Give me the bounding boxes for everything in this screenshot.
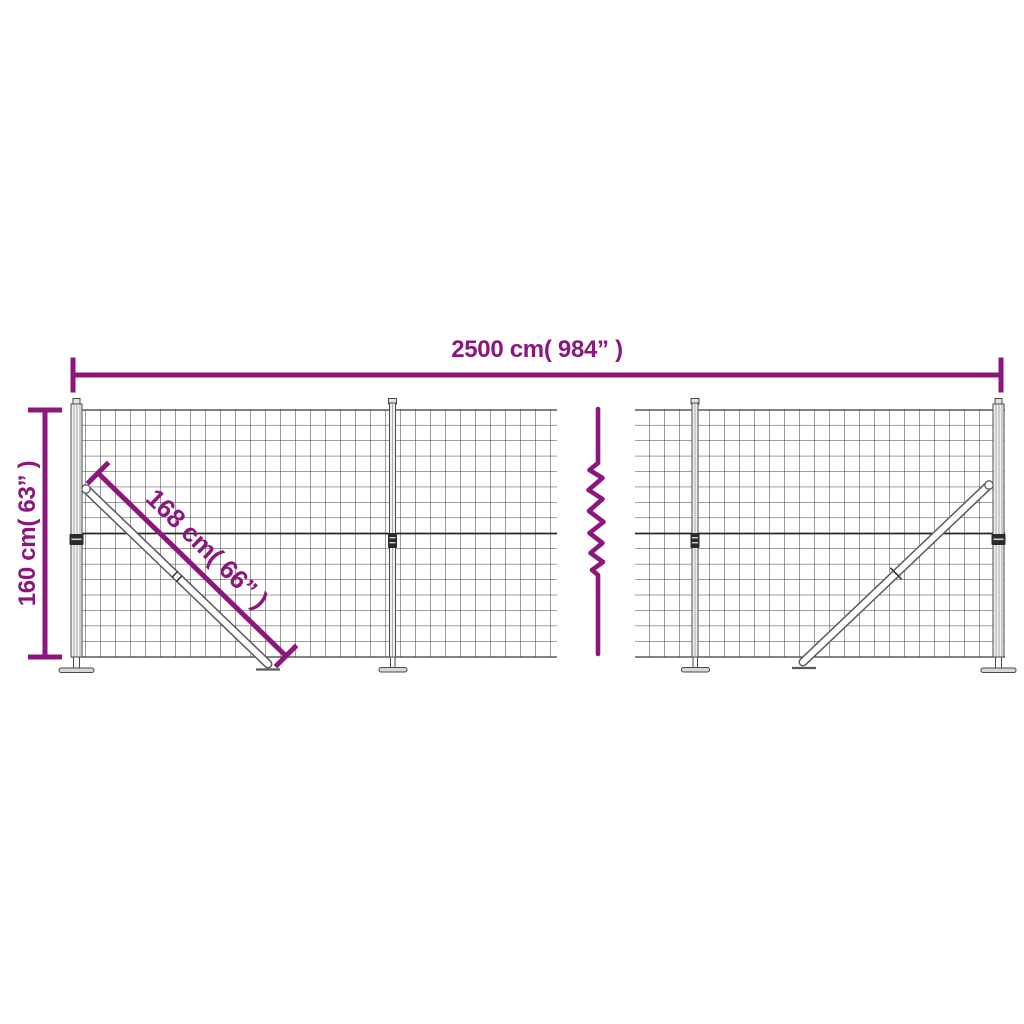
diagram-canvas: 2500 cm( 984” ) 160 cm( 63” ) 168 cm( 66… (0, 0, 1024, 1024)
post-foot-flange (59, 668, 94, 673)
brace-attach-ring-left (82, 485, 90, 493)
post-clamp (388, 533, 397, 548)
post-foot-stem (693, 657, 698, 668)
height-dimension-label: 160 cm( 63” ) (14, 461, 41, 607)
width-dimension: 2500 cm( 984” ) (73, 336, 1001, 393)
post-clamp-slit (692, 537, 698, 538)
brace-attach-ring-right (985, 481, 993, 489)
post-clamp-slit (692, 542, 698, 543)
post-clamp-slit (72, 539, 82, 541)
height-dimension: 160 cm( 63” ) (14, 410, 62, 657)
post-foot-flange (682, 668, 710, 673)
post-clamp (691, 533, 700, 548)
mesh-panel-right (635, 410, 1005, 657)
post-foot-stem (74, 657, 80, 669)
post-clamp-slit (390, 542, 396, 543)
post-foot-stem (391, 657, 396, 668)
mesh-panel-left (71, 410, 557, 657)
post-clamp-slit (390, 537, 396, 538)
post-foot-flange (981, 668, 1016, 673)
post-foot-stem (996, 657, 1002, 669)
break-symbol-zigzag (589, 409, 604, 654)
post-foot-flange (379, 668, 407, 673)
post-clamp-slit (994, 539, 1004, 541)
fence-dimension-diagram: 2500 cm( 984” ) 160 cm( 63” ) 168 cm( 66… (0, 0, 1024, 1024)
width-dimension-label: 2500 cm( 984” ) (451, 336, 623, 363)
